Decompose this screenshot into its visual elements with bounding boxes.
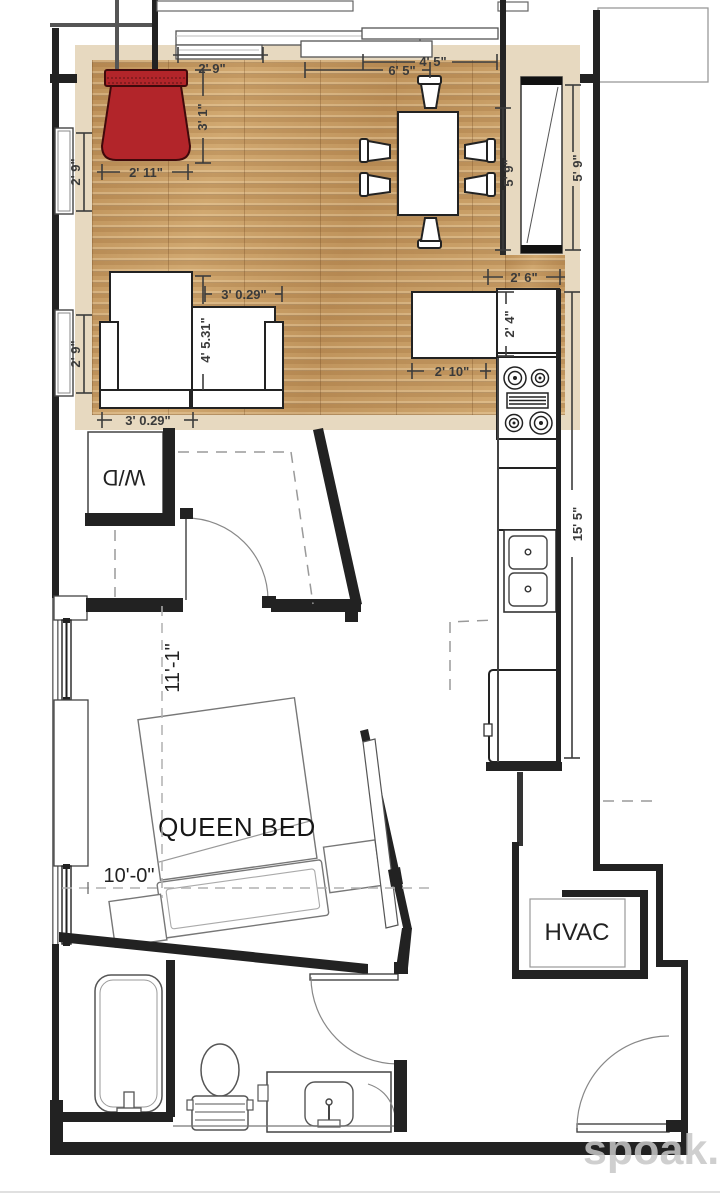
dim-counter-width: 2' 6" [483, 269, 565, 285]
dim-armchair-width-bottom: 3' 0.29" [97, 412, 198, 428]
svg-text:4' 5": 4' 5" [419, 54, 446, 69]
dim-dining-span-a: 6' 5" [305, 62, 430, 78]
kitchen-sink [504, 530, 556, 612]
laundry-label: W/D [103, 465, 146, 490]
kitchen-island [412, 292, 497, 358]
left-windows [54, 128, 88, 946]
toilet [187, 1044, 253, 1130]
svg-text:5' 9": 5' 9" [501, 159, 516, 186]
bed-label: QUEEN BED [158, 812, 316, 842]
svg-text:5' 9": 5' 9" [570, 154, 585, 181]
spoak-watermark: spoak. [583, 1126, 720, 1175]
svg-text:10'-0": 10'-0" [104, 865, 155, 887]
hvac-label: HVAC [545, 919, 610, 946]
dim-bedroom-length: 11'-1" [162, 643, 184, 692]
svg-text:2' 10": 2' 10" [435, 364, 470, 379]
dim-bedroom-width: 10'-0" [104, 865, 155, 887]
dining-set [360, 76, 495, 248]
vanity-sink [258, 1072, 396, 1132]
svg-text:3' 0.29": 3' 0.29" [221, 287, 266, 302]
entry-door [577, 1036, 682, 1132]
tall-shelf [521, 77, 562, 253]
svg-text:15' 5": 15' 5" [570, 507, 585, 542]
dim-kitchen-run: 15' 5" [564, 292, 585, 758]
bathroom [59, 932, 408, 1132]
stove [497, 357, 557, 439]
entry [178, 428, 362, 622]
svg-text:4' 5.31": 4' 5.31" [198, 317, 213, 362]
bathtub [95, 975, 162, 1114]
svg-text:2' 4": 2' 4" [502, 310, 517, 337]
svg-text:11'-1": 11'-1" [162, 643, 184, 692]
svg-text:2' 9": 2' 9" [68, 158, 83, 185]
svg-text:3' 1": 3' 1" [195, 103, 210, 130]
refrigerator [484, 670, 560, 762]
dim-shelf-height: 5' 9" [565, 85, 585, 250]
bedroom-door [180, 508, 276, 608]
svg-text:2' 9": 2' 9" [68, 340, 83, 367]
svg-text:3' 0.29": 3' 0.29" [125, 413, 170, 428]
svg-text:2' 11": 2' 11" [129, 165, 163, 180]
dim-armchair-width-top: 3' 0.29" [205, 286, 282, 302]
laundry-closet: W/D [85, 428, 183, 612]
svg-text:2' 6": 2' 6" [510, 270, 537, 285]
kitchen-cabinet [498, 468, 557, 530]
red-armchair [102, 70, 190, 160]
dim-island-width: 2' 10" [407, 363, 491, 379]
dim-red-chair-width: 2' 11" [97, 164, 193, 180]
svg-text:6' 5": 6' 5" [388, 63, 415, 78]
dim-red-chair-height: 3' 1" [195, 70, 211, 163]
bedroom: QUEEN BED [84, 689, 412, 968]
floor-plan-canvas: W/D [0, 0, 720, 1200]
floor-plan-drawing: W/D [0, 0, 720, 1200]
hvac-closet: HVAC [512, 842, 648, 979]
